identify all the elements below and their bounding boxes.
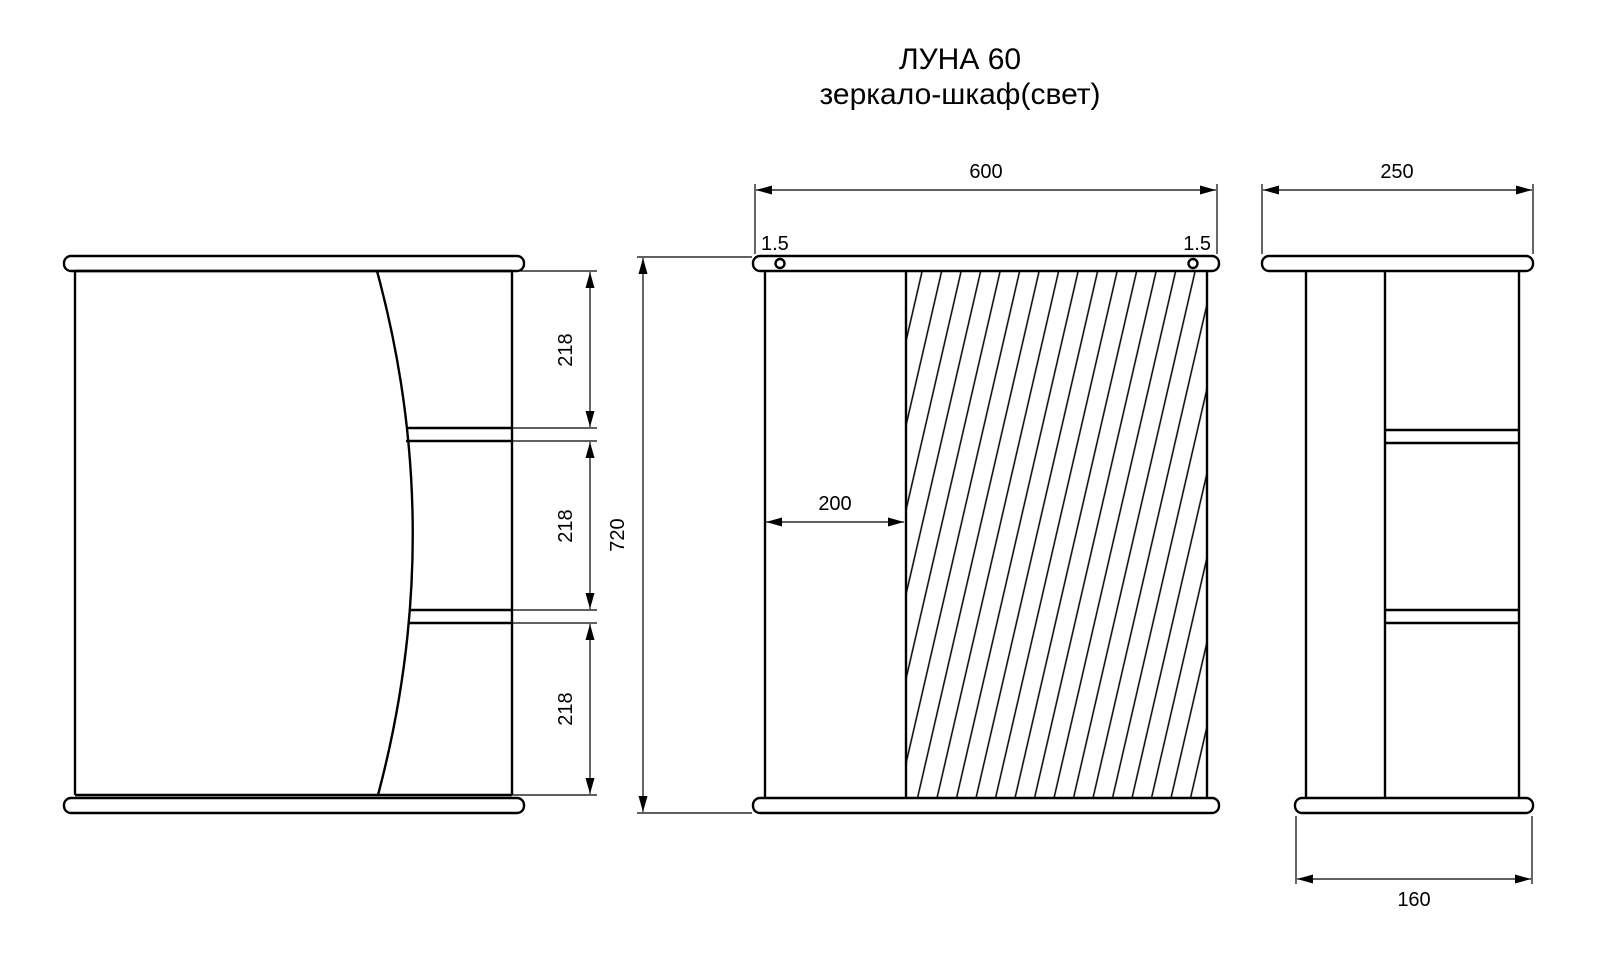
left-view-shelf-dimensions: 218 218 218 <box>555 272 590 794</box>
dim-overall-height: 720 <box>607 518 629 551</box>
drawing-svg: 218 218 218 600 1.5 1.5 <box>0 0 1600 959</box>
front-view-top-cap <box>753 256 1219 271</box>
side-view-shelf-lines <box>1385 430 1519 623</box>
dim-top-inset-left: 1.5 <box>761 233 789 255</box>
front-view-width-dimension: 600 1.5 1.5 <box>755 161 1217 255</box>
front-view-plinth <box>753 798 1219 813</box>
front-view-door-offset-dimension: 200 <box>766 493 904 522</box>
dim-overall-width: 600 <box>969 161 1002 183</box>
side-view: 250 160 <box>1262 161 1533 911</box>
side-view-top-cap <box>1262 256 1533 271</box>
left-view-top-cap <box>64 256 524 271</box>
side-view-depth-dimension: 250 <box>1262 161 1533 254</box>
left-view-shelf-lines <box>406 428 512 623</box>
dim-plinth-depth: 160 <box>1397 889 1430 911</box>
dim-shelf-spacing-3: 218 <box>555 692 577 725</box>
left-view-door-curve <box>377 271 413 795</box>
dim-shelf-spacing-2: 218 <box>555 509 577 542</box>
left-view: 218 218 218 <box>64 256 597 813</box>
dim-shelf-spacing-1: 218 <box>555 333 577 366</box>
dim-top-inset-right: 1.5 <box>1183 233 1211 255</box>
front-view-right-fixing <box>1189 259 1198 268</box>
front-view-mirror-hatch <box>906 271 1206 798</box>
front-view-height-dimension: 720 <box>607 257 752 813</box>
technical-drawing-canvas: ЛУНА 60 зеркало-шкаф(свет) <box>0 0 1600 959</box>
side-view-plinth <box>1295 798 1533 813</box>
left-view-plinth <box>64 798 524 813</box>
front-view: 600 1.5 1.5 200 720 <box>607 161 1219 813</box>
dim-door-offset: 200 <box>818 493 851 515</box>
front-view-left-fixing <box>776 259 785 268</box>
dim-overall-depth: 250 <box>1380 161 1413 183</box>
side-view-plinth-dimension: 160 <box>1296 816 1532 911</box>
